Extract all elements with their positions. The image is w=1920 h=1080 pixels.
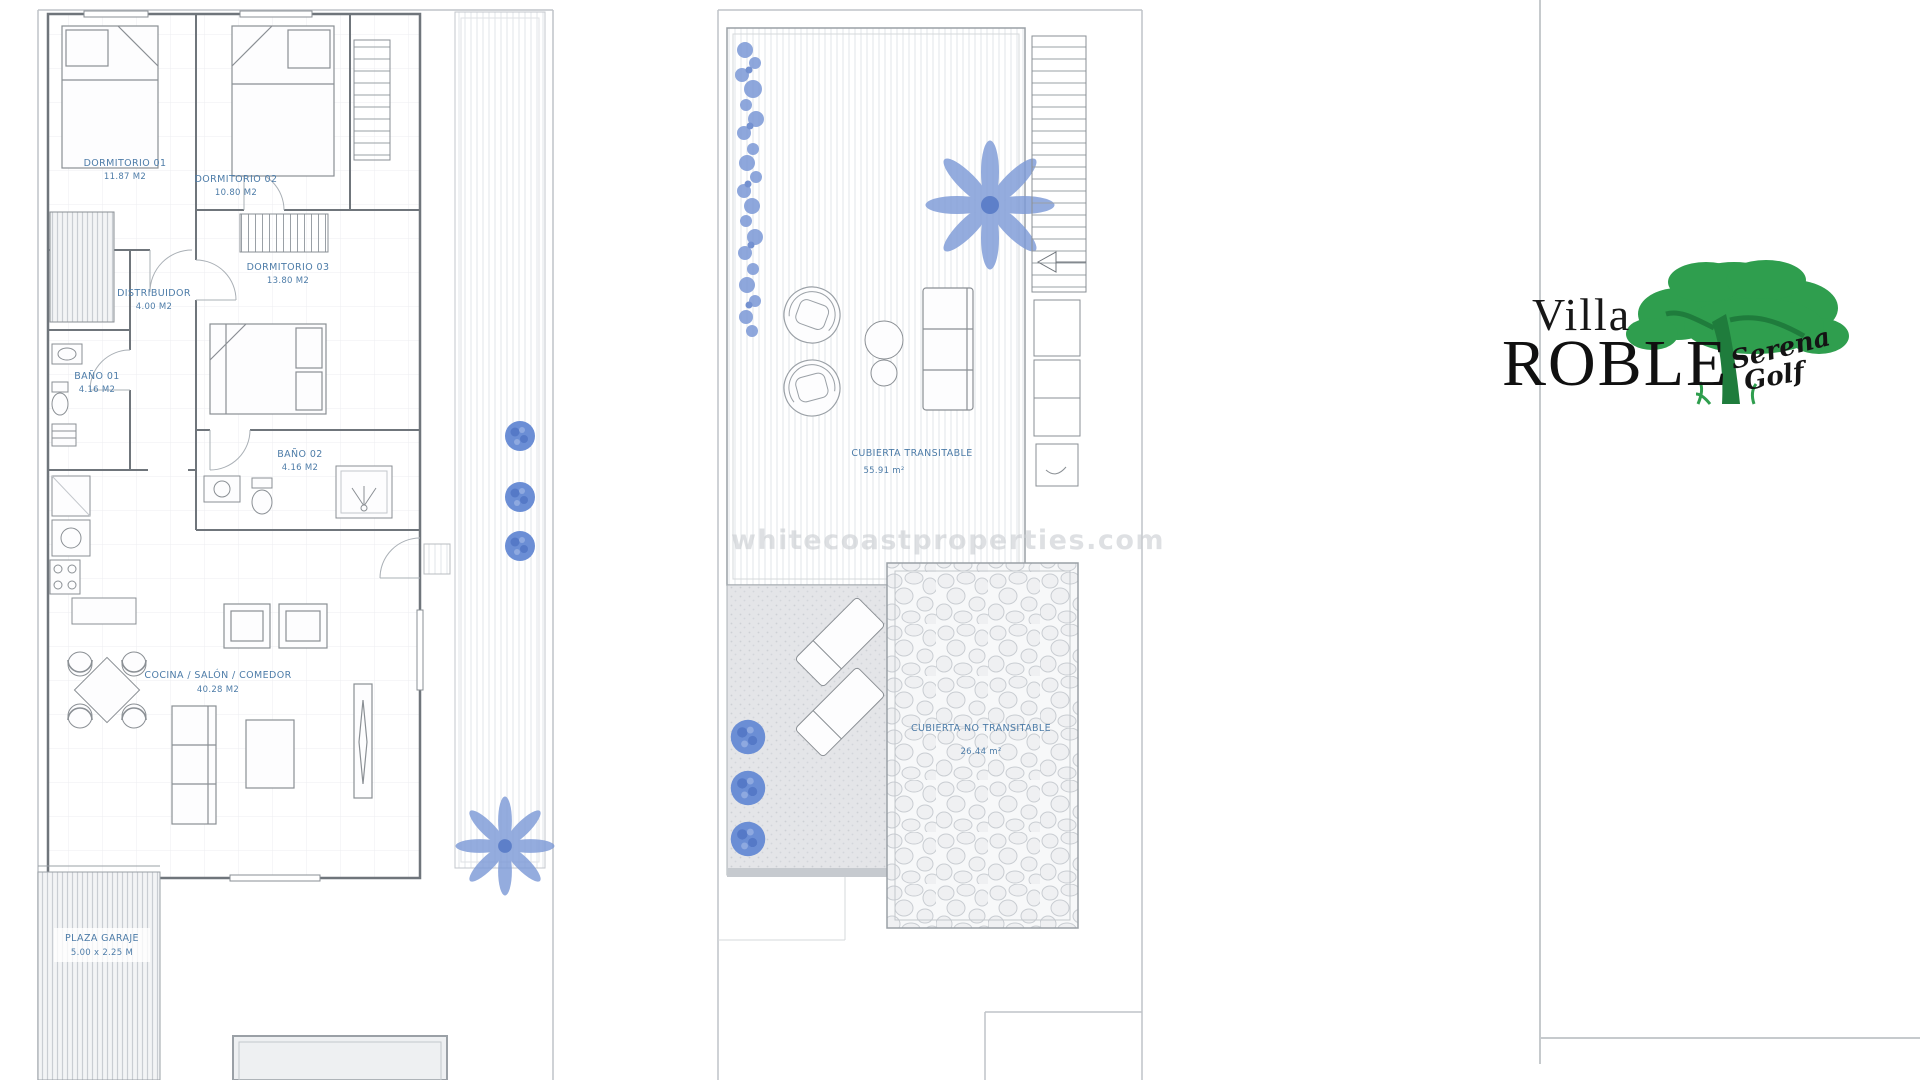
neighbor-outline — [985, 1012, 1142, 1080]
bush-icon — [731, 720, 766, 755]
gravel-roof — [887, 563, 1078, 928]
sink-basin-icon — [214, 481, 230, 497]
gray-terrace — [727, 585, 887, 877]
patio-pool — [233, 1036, 447, 1080]
roof-stairs — [1032, 36, 1086, 292]
stove-icon — [50, 560, 80, 594]
plans-svg: DORMITORIO 01 11.87 M2 DORMITORIO 02 10.… — [0, 0, 1920, 1080]
bush-icon — [505, 531, 535, 561]
dining-set — [68, 652, 146, 728]
side-table-icon — [871, 360, 897, 386]
ground-floor-plan: DORMITORIO 01 11.87 M2 DORMITORIO 02 10.… — [38, 10, 554, 1080]
room-label-dormitorio-03: DORMITORIO 03 — [247, 262, 330, 273]
garden-strip — [455, 12, 554, 895]
towel-rack-icon — [52, 424, 76, 446]
area-label-cubierta-transitable: CUBIERTA TRANSITABLE — [851, 448, 972, 459]
roof-deck — [727, 28, 1025, 585]
room-area-distribuidor: 4.00 M2 — [136, 302, 172, 312]
round-table-icon — [865, 321, 903, 359]
room-area-bano-01: 4.16 M2 — [79, 385, 115, 395]
bed-icon — [210, 324, 326, 414]
room-label-dormitorio-01: DORMITORIO 01 — [84, 158, 167, 169]
bed-icon — [62, 26, 158, 168]
wardrobe-icon — [50, 212, 114, 322]
room-label-dormitorio-02: DORMITORIO 02 — [195, 174, 278, 185]
roof-utility-boxes — [1034, 300, 1080, 486]
palm-icon — [456, 797, 555, 896]
room-area-dormitorio-03: 13.80 M2 — [267, 276, 309, 286]
bush-icon — [505, 482, 535, 512]
bush-icon — [505, 421, 535, 451]
room-label-distribuidor: DISTRIBUIDOR — [117, 288, 191, 299]
toilet-icon — [252, 490, 272, 514]
sofa-icon — [923, 288, 973, 410]
logo-roble-text: ROBLE — [1502, 326, 1728, 402]
counter-icon — [72, 598, 136, 624]
room-area-dormitorio-02: 10.80 M2 — [215, 188, 257, 198]
area-label-cubierta-no-transitable: CUBIERTA NO TRANSITABLE — [911, 723, 1051, 734]
bush-icon — [731, 822, 766, 857]
toilet-tank-icon — [52, 382, 68, 392]
plot-boundary-far-right — [1540, 0, 1920, 1064]
room-label-bano-01: BAÑO 01 — [74, 371, 120, 382]
stairs-icon — [240, 214, 328, 252]
room-area-cocina: 40.28 M2 — [197, 685, 239, 695]
room-area-dormitorio-01: 11.87 M2 — [104, 172, 146, 182]
watermark-text: whitecoastproperties.com — [731, 525, 1165, 556]
bush-icon — [731, 771, 766, 806]
toilet-tank-icon — [252, 478, 272, 488]
room-label-bano-02: BAÑO 02 — [277, 449, 323, 460]
brand-logo: Villa ROBLE Serena Golf — [1502, 266, 1912, 431]
room-label-cocina: COCINA / SALÓN / COMEDOR — [144, 669, 291, 681]
ladder-icon — [354, 40, 390, 160]
area-value-cubierta-transitable: 55.91 m² — [863, 466, 904, 476]
area-value-cubierta-no-transitable: 26.44 m² — [960, 747, 1001, 757]
toilet-icon — [52, 393, 68, 415]
floor-plan-sheet: DORMITORIO 01 11.87 M2 DORMITORIO 02 10.… — [0, 0, 1920, 1080]
garage-area — [38, 866, 160, 1080]
washer-icon — [52, 520, 90, 556]
sofa-icon — [172, 706, 216, 824]
terrace-step-lines — [718, 877, 845, 940]
sink-basin-icon — [58, 348, 76, 360]
room-area-bano-02: 4.16 M2 — [282, 463, 318, 473]
room-label-plaza-garaje: PLAZA GARAJE — [65, 933, 139, 944]
coffee-table-icon — [246, 720, 294, 788]
entrance-mat — [424, 544, 450, 574]
bed-icon — [232, 26, 334, 176]
room-area-plaza-garaje: 5.00 x 2.25 M — [71, 948, 133, 958]
